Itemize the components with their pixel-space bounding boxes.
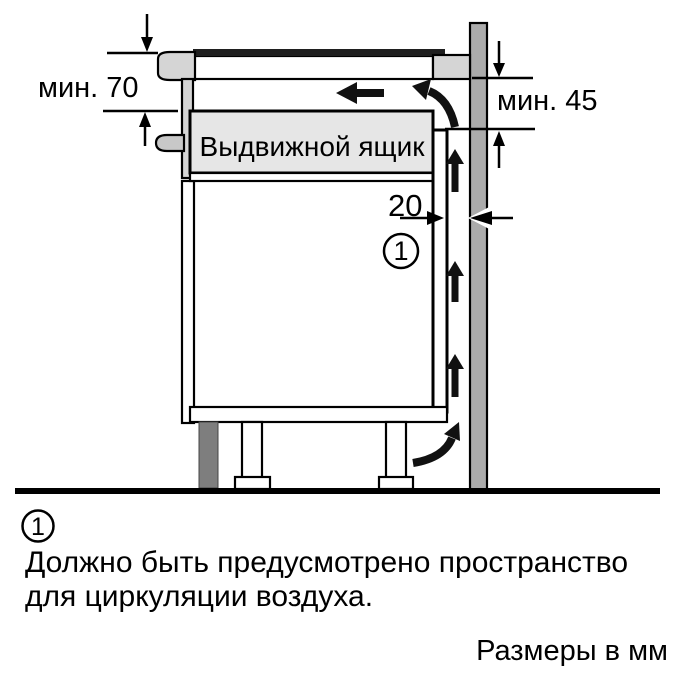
wall — [470, 23, 487, 491]
dimension-gap-20: 20 — [388, 188, 513, 232]
callout-1-digit: 1 — [393, 236, 408, 266]
airflow-arrow-up-1 — [446, 149, 464, 192]
airflow-arrow-curved-bottom — [413, 438, 452, 463]
cabinet-side-panel-lower — [182, 181, 194, 423]
hob-junction-box — [156, 135, 184, 151]
cabinet-bottom-panel — [190, 407, 447, 422]
min-45-label: мин. 45 — [497, 85, 598, 117]
worktop-section — [193, 56, 433, 79]
footnote-line-2: для циркуляции воздуха. — [25, 580, 373, 613]
airflow-arrowhead-curved-top — [412, 79, 431, 100]
airflow-arrow-up-3 — [446, 354, 464, 397]
footnote-line-1: Должно быть предусмотрено пространство — [25, 546, 628, 579]
airflow-arrow-left — [336, 82, 384, 104]
dimension-arrowhead-up — [493, 131, 505, 146]
installation-diagram: Выдвижной ящик мин. 70 мин. 45 20 — [0, 0, 675, 675]
plinth — [199, 422, 218, 488]
footnote-marker-digit: 1 — [31, 513, 45, 541]
dimension-min-70: мин. 70 — [38, 14, 178, 146]
cabinet-back-panel — [433, 130, 447, 412]
dimension-arrowhead-down — [141, 37, 153, 52]
min-70-label: мин. 70 — [38, 72, 139, 104]
dimension-arrowhead-up — [139, 112, 151, 127]
cabinet-leg-right-stem — [386, 422, 406, 478]
cabinet-leg-left-foot — [235, 477, 270, 489]
cabinet-leg-right-foot — [379, 477, 413, 489]
hob-left-edge — [158, 52, 195, 80]
hob-surface — [193, 49, 445, 56]
worktop-right-block — [433, 55, 470, 79]
units-label: Размеры в мм — [476, 635, 668, 667]
drawer-label: Выдвижной ящик — [200, 131, 426, 162]
floor-line — [15, 488, 660, 494]
cabinet-leg-left-stem — [242, 422, 262, 478]
dimension-arrowhead-down — [493, 63, 505, 77]
drawer-rail — [190, 173, 433, 181]
airflow-arrow-up-2 — [446, 261, 464, 302]
